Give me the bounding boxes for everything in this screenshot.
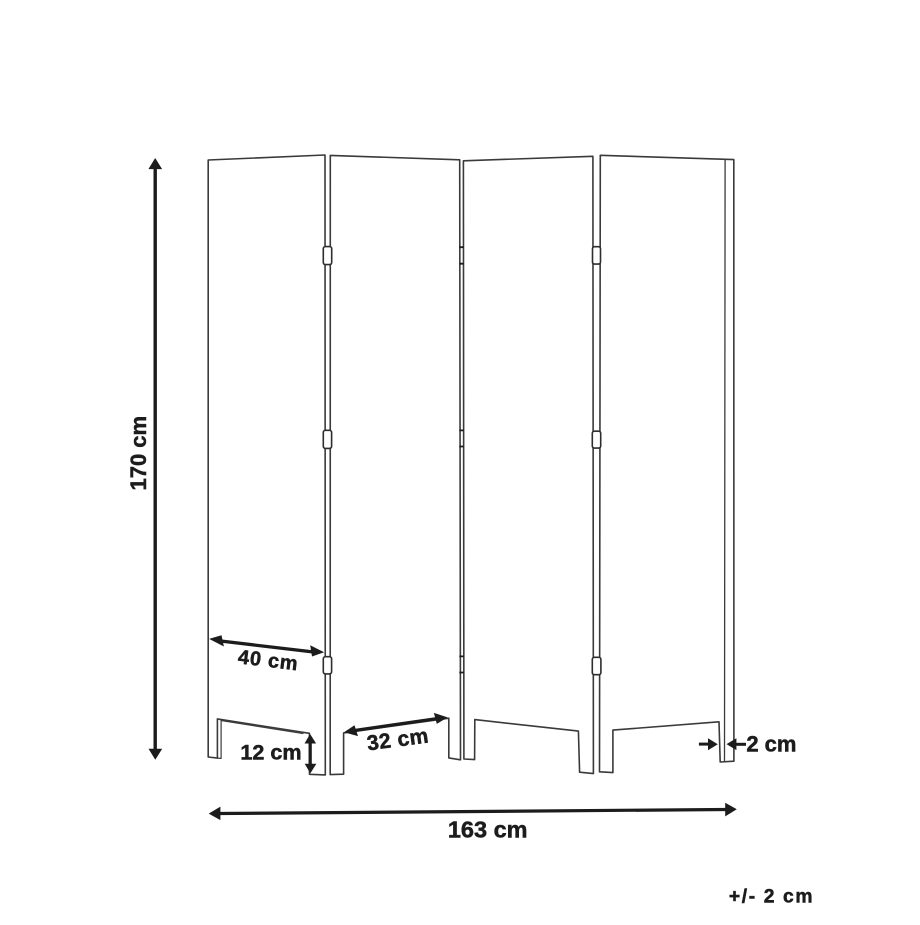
svg-text:170 cm: 170 cm: [126, 416, 151, 491]
svg-text:12 cm: 12 cm: [240, 739, 301, 764]
svg-text:163 cm: 163 cm: [448, 816, 528, 842]
svg-text:+/- 2 cm: +/- 2 cm: [729, 887, 814, 908]
svg-text:2 cm: 2 cm: [746, 731, 796, 756]
